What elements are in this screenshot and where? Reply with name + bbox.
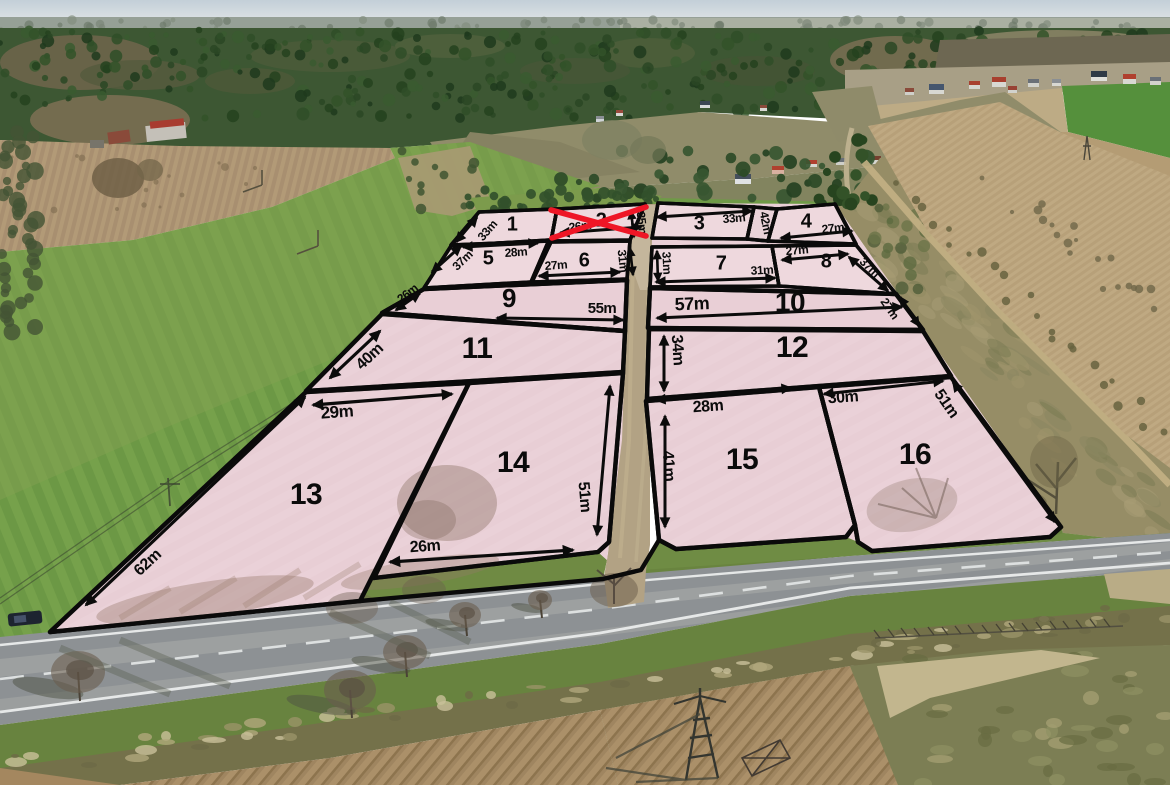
svg-text:27m: 27m: [821, 220, 845, 236]
svg-text:28m: 28m: [692, 397, 724, 416]
svg-text:12: 12: [776, 331, 808, 364]
svg-text:6: 6: [579, 249, 590, 271]
svg-text:29m: 29m: [320, 401, 354, 422]
svg-text:26m: 26m: [409, 537, 441, 556]
svg-text:41m: 41m: [659, 450, 678, 482]
svg-text:31m: 31m: [659, 251, 674, 274]
svg-text:8: 8: [821, 250, 832, 272]
svg-text:28m: 28m: [504, 244, 527, 260]
svg-text:34m: 34m: [668, 334, 687, 366]
svg-text:15: 15: [726, 443, 758, 476]
svg-text:1: 1: [507, 213, 518, 235]
svg-text:9: 9: [502, 283, 516, 313]
svg-text:7: 7: [716, 252, 727, 274]
svg-text:5: 5: [483, 247, 494, 269]
svg-text:31m: 31m: [750, 263, 773, 278]
svg-text:55m: 55m: [588, 300, 617, 317]
svg-text:4: 4: [801, 210, 813, 232]
svg-text:11: 11: [462, 332, 493, 365]
svg-text:51m: 51m: [574, 481, 594, 513]
svg-text:27m: 27m: [785, 242, 809, 258]
svg-text:31m: 31m: [615, 249, 631, 273]
svg-text:16: 16: [899, 438, 931, 471]
svg-text:27m: 27m: [544, 257, 567, 273]
svg-text:30m: 30m: [827, 388, 859, 407]
svg-text:57m: 57m: [674, 293, 709, 314]
svg-text:14: 14: [497, 446, 530, 479]
svg-text:33m: 33m: [722, 210, 746, 226]
svg-text:13: 13: [290, 478, 322, 511]
